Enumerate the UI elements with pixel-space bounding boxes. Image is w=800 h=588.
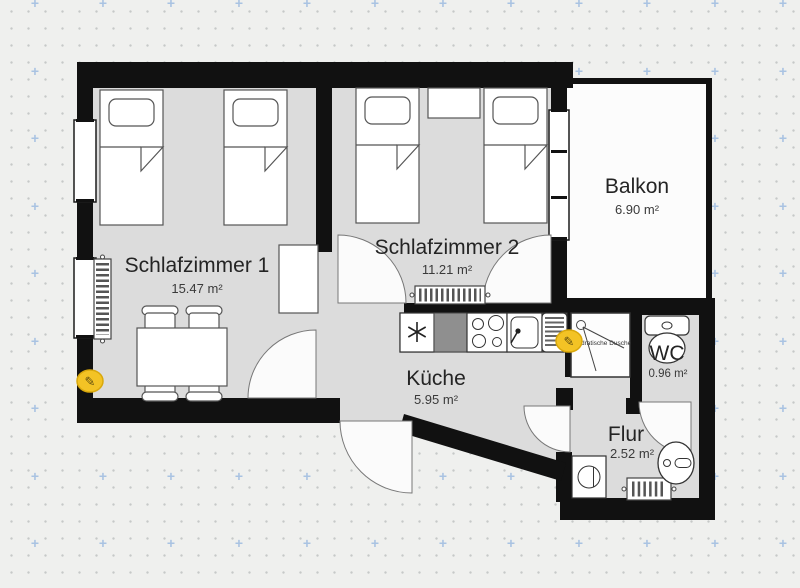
kitchen-sink-icon[interactable] — [507, 313, 542, 352]
chair-back — [142, 392, 178, 401]
pencil-icon: ✎ — [564, 335, 575, 350]
bed-pillow — [493, 97, 538, 124]
freezer-icon[interactable] — [400, 313, 434, 352]
room-area-balkon: 6.90 m² — [615, 202, 660, 217]
bed-pillow — [109, 99, 154, 126]
bed-icon[interactable] — [484, 88, 547, 223]
radiator-foot — [101, 339, 105, 343]
stove-icon[interactable] — [467, 313, 507, 352]
radiator-foot — [672, 487, 676, 491]
wall-balkon-right — [706, 78, 712, 315]
window-tick — [551, 150, 567, 153]
room-label-schlafzimmer1: Schlafzimmer 1 — [125, 254, 270, 277]
bed-pillow — [233, 99, 278, 126]
room-area-kueche: 5.95 m² — [414, 392, 459, 407]
floorplan-scene: ++++++++++++++++++++++++++++++++++++++++… — [0, 0, 800, 588]
floorplan-canvas: Schlafzimmer 1 15.47 m² Schlafzimmer 2 1… — [0, 0, 800, 588]
window-tick — [551, 196, 567, 199]
chair-icon[interactable] — [142, 306, 178, 330]
window-tick — [76, 199, 94, 202]
wall-balkon-top — [567, 78, 712, 84]
wall-flur-bottom — [560, 498, 715, 520]
radiator-foot — [101, 255, 105, 259]
window-left-upper — [74, 120, 96, 202]
door-swing-entrance — [340, 421, 412, 493]
window-tick — [76, 119, 94, 122]
edit-marker[interactable]: ✎ — [556, 330, 582, 352]
radiator-icon[interactable] — [94, 255, 111, 343]
basin-faucet — [675, 459, 691, 468]
wall-bottom-schlafzimmer1 — [77, 398, 340, 423]
room-label-schlafzimmer2: Schlafzimmer 2 — [375, 236, 520, 259]
wardrobe-icon[interactable] — [279, 245, 318, 313]
room-label-wc: WC — [650, 342, 685, 365]
bed-pillow — [365, 97, 410, 124]
bed-icon[interactable] — [100, 90, 163, 225]
washing-machine-door — [578, 466, 600, 488]
room-label-flur: Flur — [608, 423, 644, 446]
room-label-kueche: Küche — [406, 367, 466, 390]
chair-icon[interactable] — [186, 306, 222, 330]
radiator-icon[interactable] — [410, 286, 490, 304]
wall-bedroom-divider — [316, 88, 332, 252]
radiator-foot — [622, 487, 626, 491]
bed-icon[interactable] — [356, 88, 419, 223]
nightstand-icon[interactable] — [428, 88, 480, 118]
burner-circle — [493, 338, 502, 347]
pencil-icon: ✎ — [85, 375, 96, 390]
wall-dusche-wc-divider — [630, 315, 642, 400]
window-tick — [76, 335, 94, 338]
edit-marker[interactable]: ✎ — [77, 370, 103, 392]
room-area-schlafzimmer1: 15.47 m² — [171, 281, 223, 296]
room-area-wc: 0.96 m² — [649, 368, 688, 380]
counter-unit[interactable] — [434, 313, 467, 352]
window-tick — [551, 109, 567, 112]
toilet-button — [662, 322, 672, 329]
radiator-foot — [410, 293, 414, 297]
chair-back — [186, 392, 222, 401]
washing-machine-icon[interactable] — [572, 456, 606, 498]
radiator-foot — [486, 293, 490, 297]
window-left-lower — [74, 258, 96, 338]
burner-circle — [473, 319, 484, 330]
bed-icon[interactable] — [224, 90, 287, 225]
washbasin-icon[interactable] — [658, 442, 694, 484]
wall-left — [77, 62, 93, 423]
burner-circle — [489, 316, 504, 331]
wall-top — [77, 62, 573, 88]
burner-circle — [473, 335, 486, 348]
window-tick — [76, 257, 94, 260]
room-label-balkon: Balkon — [605, 175, 669, 198]
room-area-schlafzimmer2: 11.21 m² — [422, 262, 473, 277]
window-balkon-door — [549, 110, 569, 240]
dining-table-icon[interactable] — [137, 328, 227, 386]
sink-basin — [511, 317, 538, 348]
wall-wc-right — [699, 315, 715, 505]
room-area-flur: 2.52 m² — [610, 446, 655, 461]
kitchen-counter[interactable] — [400, 313, 567, 352]
window-tick — [551, 237, 567, 240]
